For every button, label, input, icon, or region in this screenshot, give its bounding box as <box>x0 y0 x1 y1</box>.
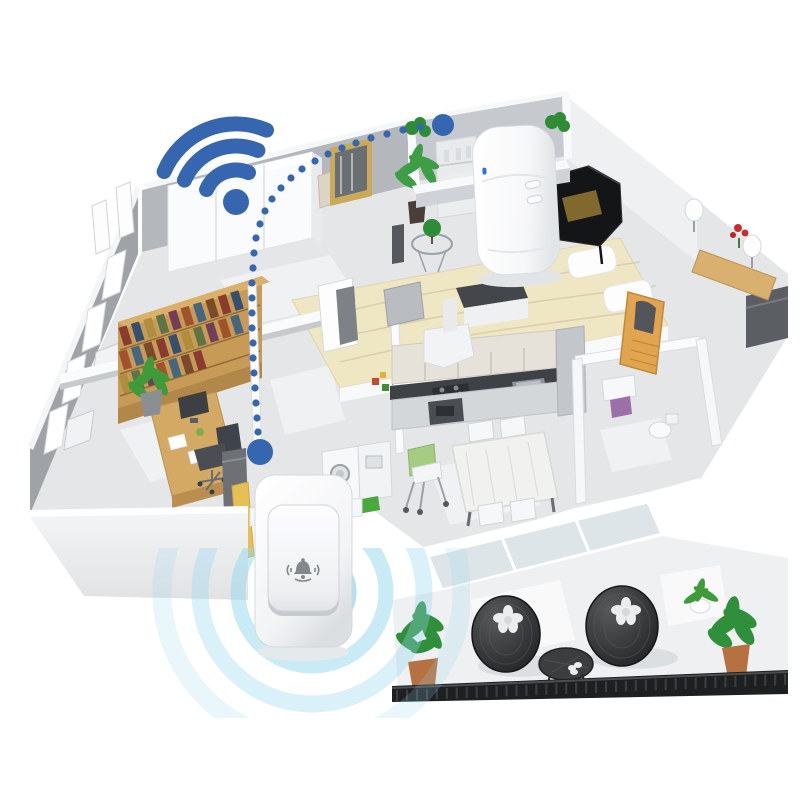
monitor-stand <box>190 418 198 423</box>
railing-post <box>615 681 617 692</box>
signal-dot <box>416 123 423 130</box>
signal-dot <box>256 220 263 227</box>
signal-dot <box>248 294 255 301</box>
dining-table <box>452 432 558 512</box>
doorbell-push-button <box>268 505 339 611</box>
railing-post <box>515 685 517 696</box>
desk-accessory <box>196 428 204 436</box>
bonsai <box>423 219 441 237</box>
railing-post <box>744 676 746 687</box>
oven-window <box>436 406 454 416</box>
railing-post <box>704 677 706 688</box>
door-window <box>634 301 656 334</box>
railing-post <box>486 686 488 697</box>
railing-post <box>734 676 736 687</box>
signal-dot <box>399 126 406 133</box>
signal-dot <box>383 130 390 137</box>
receiver <box>470 124 562 289</box>
signal-dot <box>367 134 374 141</box>
railing-post <box>476 687 478 698</box>
railing-post <box>495 686 497 697</box>
doorbell-button <box>255 475 352 661</box>
railing-post <box>505 685 507 696</box>
railing-post <box>575 683 577 694</box>
signal-dot <box>248 324 255 331</box>
signal-dot <box>287 174 294 181</box>
railing-post <box>456 688 458 699</box>
signal-endpoint-button <box>247 439 273 465</box>
railing-post <box>555 683 557 694</box>
receiver-body <box>471 124 561 276</box>
signal-dot <box>261 207 268 214</box>
railing-post <box>466 687 468 698</box>
signal-dot <box>324 150 331 157</box>
egg-chair-2 <box>586 586 658 666</box>
egg-chair-1 <box>472 596 540 672</box>
railing-post <box>655 679 657 690</box>
signal-dot <box>248 309 255 316</box>
railing-post <box>595 682 597 693</box>
railing-post <box>694 678 696 689</box>
railing-post <box>525 685 527 696</box>
railing-post <box>774 674 776 685</box>
railing-post <box>585 682 587 693</box>
signal-dot <box>298 165 305 172</box>
signal-dot <box>268 195 275 202</box>
signal-dot <box>249 339 256 346</box>
railing-post <box>665 679 667 690</box>
railing-post <box>784 674 786 685</box>
signal-dot <box>252 399 259 406</box>
washbasin <box>602 375 636 401</box>
railing-post <box>645 680 647 691</box>
signal-dot <box>249 354 256 361</box>
signal-dot <box>249 264 256 271</box>
signal-dot <box>253 414 260 421</box>
house <box>28 91 788 702</box>
dryer <box>358 441 392 501</box>
railing-post <box>535 684 537 695</box>
railing-post <box>675 679 677 690</box>
scene-canvas <box>0 0 800 800</box>
signal-dot <box>254 428 261 435</box>
railing-post <box>396 690 398 701</box>
railing-post <box>545 684 547 695</box>
railing-post <box>724 676 726 687</box>
sideboard <box>392 224 404 264</box>
railing-post <box>625 681 627 692</box>
grey-armchair <box>384 282 424 326</box>
signal-dot <box>248 279 255 286</box>
railing-post <box>446 688 448 699</box>
signal-dot <box>250 249 257 256</box>
signal-endpoint-receiver <box>432 114 454 136</box>
signal-dot <box>250 369 257 376</box>
railing-post <box>714 677 716 688</box>
entrance-door <box>620 292 664 374</box>
railing-post <box>685 678 687 689</box>
product-illustration <box>0 0 800 800</box>
railing-post <box>764 675 766 686</box>
signal-dot <box>352 139 359 146</box>
signal-dot <box>252 234 259 241</box>
signal-dot <box>338 144 345 151</box>
railing-post <box>635 680 637 691</box>
hood-chimney <box>443 297 457 333</box>
signal-dot <box>251 384 258 391</box>
receiver-led <box>482 168 486 175</box>
railing-post <box>754 675 756 686</box>
railing-post <box>605 681 607 692</box>
toilet-tank <box>666 414 678 424</box>
signal-dot <box>311 157 318 164</box>
railing-post <box>565 683 567 694</box>
signal-dot <box>277 184 284 191</box>
